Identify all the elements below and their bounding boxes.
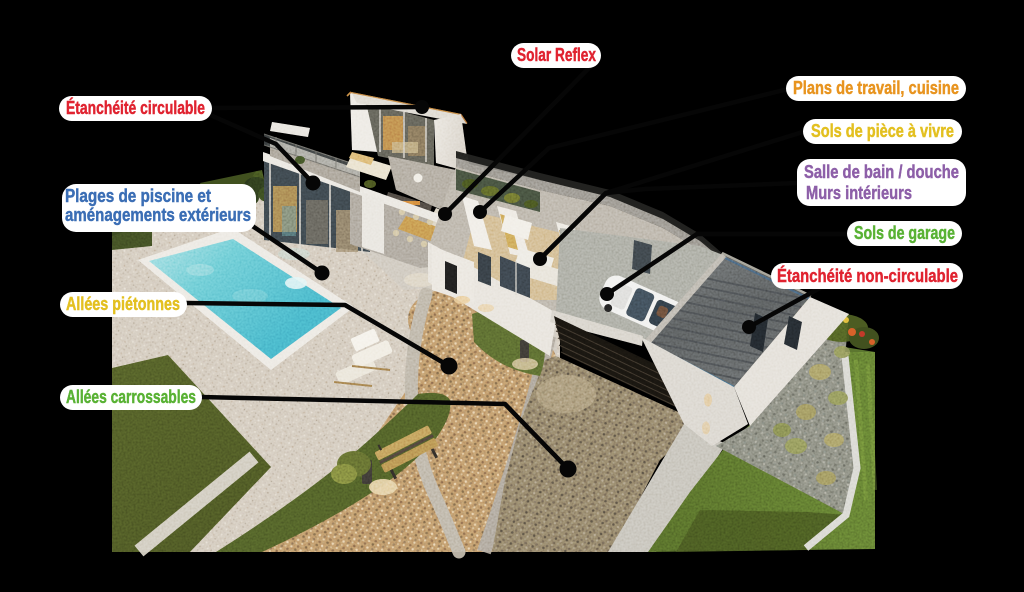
svg-text:aménagements extérieurs: aménagements extérieurs: [65, 205, 251, 225]
svg-text:Sols de garage: Sols de garage: [854, 223, 955, 243]
svg-text:Murs intérieurs: Murs intérieurs: [806, 183, 912, 203]
svg-text:Plans de travail, cuisine: Plans de travail, cuisine: [793, 78, 959, 98]
svg-text:Allées piétonnes: Allées piétonnes: [66, 294, 180, 314]
svg-text:Allées carrossables: Allées carrossables: [66, 387, 196, 407]
svg-text:Étanchéité circulable: Étanchéité circulable: [66, 97, 205, 118]
svg-text:Sols de pièce à vivre: Sols de pièce à vivre: [811, 121, 954, 141]
svg-text:Solar Reflex: Solar Reflex: [517, 45, 596, 65]
svg-text:Plages de piscine et: Plages de piscine et: [65, 186, 211, 206]
svg-text:Étanchéité non-circulable: Étanchéité non-circulable: [777, 265, 958, 286]
svg-text:Salle de bain / douche: Salle de bain / douche: [804, 162, 959, 182]
